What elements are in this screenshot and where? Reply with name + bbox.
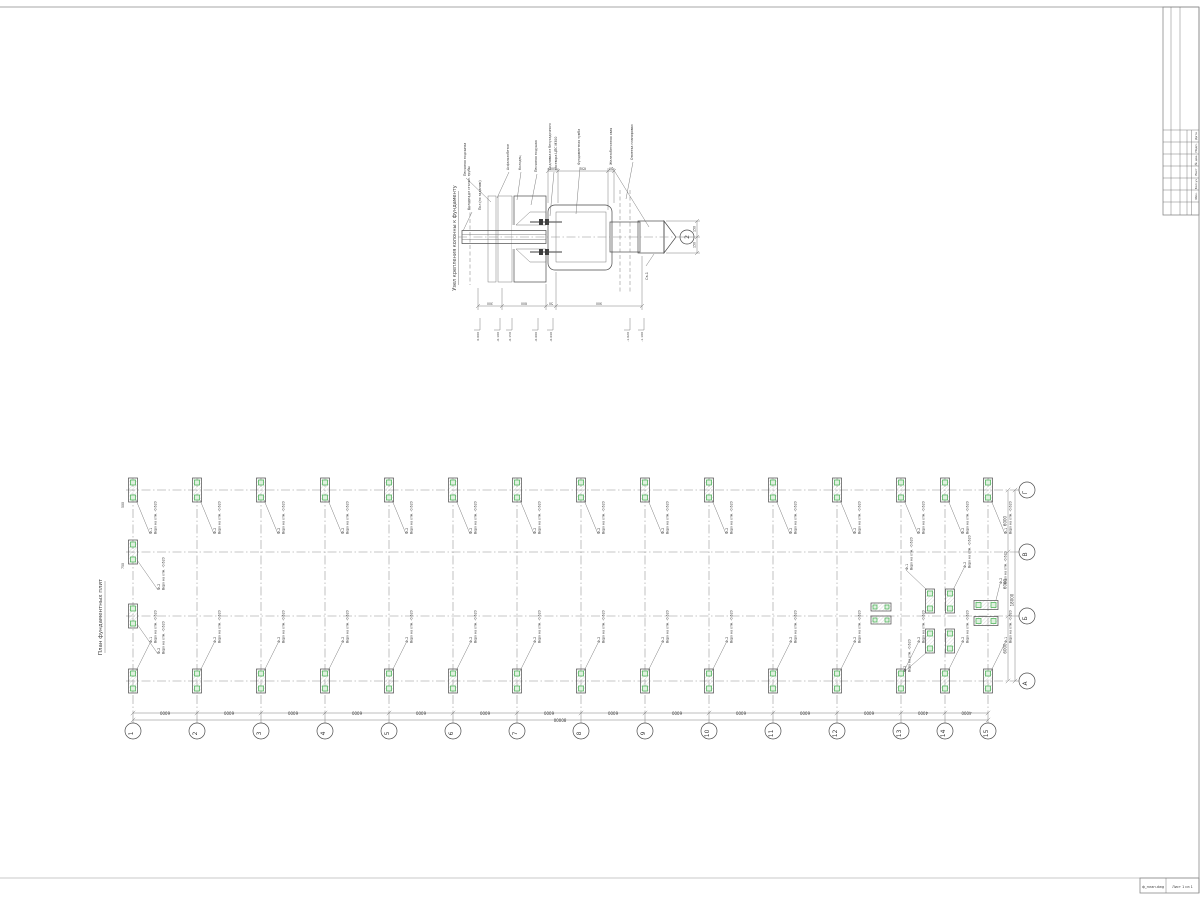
pad-elev-label: Верх на отм. -0.620 [162, 557, 166, 590]
axis-bubble [509, 723, 525, 739]
axis-bubble-label: 14 [940, 729, 947, 737]
pad-leader [584, 500, 598, 534]
anchor-plate [991, 603, 996, 608]
pad-leader [776, 643, 790, 671]
pad-leader [906, 570, 927, 590]
anchor-plate [943, 671, 948, 676]
pad-leader [137, 560, 158, 590]
sheet-frame [0, 7, 1199, 893]
svg-text:-0.100: -0.100 [496, 332, 500, 342]
svg-text:300: 300 [487, 301, 493, 305]
axis-bubble [189, 723, 205, 739]
anchor-plate [986, 495, 991, 500]
anchor-plate [259, 480, 264, 485]
axis-bubble-label: 7 [512, 731, 519, 735]
drawing-canvas: Дата Подп. № док. Лист Кол.уч Изм. ф_пла… [0, 0, 1200, 900]
anchor-plate [579, 686, 584, 691]
row-dim-label: 6000 [1003, 515, 1008, 526]
svg-text:Подливка из безусадочного: Подливка из безусадочного [548, 123, 552, 170]
pad-mark-label: Ф-2 [789, 637, 793, 643]
svg-text:Колонна из стальн. трубы: Колонна из стальн. трубы [467, 166, 471, 210]
pad-mark-label: Ф-2 [157, 584, 161, 590]
pad-mark-label: Ф-2 [961, 528, 965, 534]
svg-text:Железобетонная свая: Железобетонная свая [609, 128, 613, 165]
pad-leader [200, 643, 214, 671]
pad-elev-label: Верх на отм. -0.620 [858, 610, 862, 643]
anchor-plate [986, 480, 991, 485]
pad-mark-label: Ф-2 [405, 528, 409, 534]
pad-elev-label: Верх на отм. -0.620 [910, 537, 914, 570]
pad-elev-label: Верх на отм. -0.620 [1009, 610, 1013, 643]
stamp-label: № док. [1194, 155, 1198, 166]
pad-mark-label: Ф-2 [853, 528, 857, 534]
pad-elev-label: Верх на отм. -0.620 [346, 610, 350, 643]
pad-leader [264, 500, 278, 534]
bay-dim-label: 6000 [799, 711, 810, 716]
stamp-label: Кол.уч [1194, 179, 1198, 190]
pad-mark-label: Ф-2 [661, 528, 665, 534]
pad-elev-label: Верх на отм. -0.620 [794, 610, 798, 643]
anchor-plate [928, 606, 933, 611]
svg-text:раствора ЦПС М300: раствора ЦПС М300 [554, 137, 558, 170]
anchor-plate [323, 495, 328, 500]
detail-bottom-dims: 300 600 50 900 [476, 256, 644, 310]
anchor-plate [991, 619, 996, 624]
pad-elev-label: Верх на отм. -0.620 [730, 610, 734, 643]
bay-dim-label: 4000 [961, 711, 972, 716]
bay-dim-label: 6000 [543, 711, 554, 716]
pad-elev-label: Верх на отм. -0.620 [538, 501, 542, 534]
bay-dim-label: 6000 [415, 711, 426, 716]
anchor-plate [195, 495, 200, 500]
anchor-plate [643, 686, 648, 691]
anchor-plate [579, 480, 584, 485]
anchor-plate [835, 480, 840, 485]
total-dim-label: 80000 [553, 718, 566, 723]
pad-mark-label: Ф-2 [341, 528, 345, 534]
axis-bubble [381, 723, 397, 739]
bay-dim-label: 6000 [607, 711, 618, 716]
svg-text:600: 600 [521, 301, 527, 305]
pad-mark-label: Ф-2 [917, 528, 921, 534]
pad-leader [840, 500, 854, 534]
svg-text:Песчаная подушка: Песчаная подушка [534, 140, 538, 172]
axis-bubble-label: Г [1022, 490, 1029, 494]
svg-text:100: 100 [550, 166, 556, 170]
detail-title: Узел крепления колонны к фундаменту [452, 185, 458, 291]
anchor-plate [771, 671, 776, 676]
anchor-plate [643, 495, 648, 500]
axis-bubble [1019, 544, 1035, 560]
anchor-plate [131, 557, 136, 562]
pad-elev-label: Верх на отм. -0.620 [922, 610, 926, 643]
pad-mark-label: Ф-2 [661, 637, 665, 643]
axis-bubble-label: 9 [640, 731, 647, 735]
anchor-plate [986, 686, 991, 691]
pad-elev-label: Верх на отм. -0.620 [162, 621, 166, 654]
row-total-dim-label: 18000 [1010, 593, 1015, 606]
pad-mark-label: Ф-2 [213, 528, 217, 534]
axis-bubble-label: 2 [192, 731, 199, 735]
pad-mark-label: Ф-2 [533, 528, 537, 534]
axis-bubble [1019, 608, 1035, 624]
pad-mark-label: Ф-2 [853, 637, 857, 643]
axis-bubble [637, 723, 653, 739]
pad-elev-label: Верх на отм. -0.620 [730, 501, 734, 534]
pad-leader [264, 643, 278, 671]
pad-leader [520, 643, 534, 671]
anchor-plate [323, 671, 328, 676]
svg-text:650: 650 [580, 166, 586, 170]
pad-leader [456, 500, 470, 534]
anchor-plate [943, 495, 948, 500]
anchor-plate [707, 495, 712, 500]
anchor-plate [259, 686, 264, 691]
axis-bubble-label: 1 [128, 731, 135, 735]
pad-leader [456, 643, 470, 671]
anchor-plate [515, 480, 520, 485]
anchor-plate [579, 495, 584, 500]
svg-text:900: 900 [596, 301, 602, 305]
pad-elev-label: Верх на отм. -0.620 [602, 610, 606, 643]
pad-elev-label: Верх на отм. -0.620 [218, 610, 222, 643]
anchor-plate [707, 686, 712, 691]
anchor-plate [259, 671, 264, 676]
pad-elev-label: Верх на отм. -0.620 [282, 501, 286, 534]
axis-bubble-label: В [1022, 552, 1029, 556]
pad-dim-label: 500 [121, 502, 125, 508]
foundation-plan: План фундаментных плит 12345678910111213… [98, 478, 1035, 739]
anchor-plate [387, 495, 392, 500]
pad-mark-label: Ф-2 [157, 648, 161, 654]
anchor-plate [873, 618, 877, 622]
anchor-plate [948, 631, 953, 636]
pad-elev-label: Верх на отм. -0.620 [794, 501, 798, 534]
detail-elevations: 0.000 -0.100 -0.150 -0.600 -0.640 -1.020… [474, 318, 644, 342]
svg-text:Асфальтобетон: Асфальтобетон [506, 144, 510, 170]
pad-leader [648, 643, 662, 671]
pad-elev-label: Верх на отм. -0.620 [966, 501, 970, 534]
anchor-plate [195, 671, 200, 676]
axis-bubble-label: 15 [983, 729, 990, 737]
axis-bubble-label: 6 [448, 731, 455, 735]
pad-leader [520, 500, 534, 534]
anchor-plate [451, 495, 456, 500]
pad-mark-label: Ф-2 [341, 637, 345, 643]
axis-bubble-label: 4 [320, 731, 327, 735]
pad-elev-label: Верх на отм. -0.620 [474, 610, 478, 643]
pad-leader [328, 500, 342, 534]
anchor-plate [873, 605, 877, 609]
axis-bubble-label: 13 [896, 729, 903, 737]
pad-leader [648, 500, 662, 534]
anchor-plate [579, 671, 584, 676]
bay-dim-label: 6000 [351, 711, 362, 716]
anchor-plate [976, 603, 981, 608]
svg-text:-1.020: -1.020 [626, 332, 630, 342]
bay-dim-label: 6000 [479, 711, 490, 716]
bay-dim-label: 6000 [671, 711, 682, 716]
svg-text:Колодец: Колодец [518, 155, 522, 170]
axis-bubble-label: 3 [256, 731, 263, 735]
stamp-label: Лист [1194, 168, 1198, 176]
svg-text:50: 50 [609, 166, 613, 170]
anchor-plate [515, 671, 520, 676]
anchor-plate [771, 495, 776, 500]
axis-bubble [317, 723, 333, 739]
detail-leader-labels: Песчаная подсыпка Асфальтобетон Колодец … [463, 123, 654, 280]
pad-mark-label: Ф-2 [405, 637, 409, 643]
pad-elev-label: Верх на отм. -0.620 [410, 610, 414, 643]
pad-elev-label: Верх на отм. -0.620 [966, 610, 970, 643]
anchor-plate [899, 495, 904, 500]
svg-text:-0.640: -0.640 [549, 332, 553, 342]
svg-text:-0.150: -0.150 [508, 332, 512, 342]
pad-leader [392, 643, 406, 671]
anchor-plate [515, 495, 520, 500]
pad-mark-label: Ф-2 [469, 528, 473, 534]
pad-leader [712, 500, 726, 534]
pad-mark-label: Ф-2 [277, 637, 281, 643]
pad-elev-label: Верх на отм. -0.620 [968, 535, 972, 568]
pad-mark-label: Ф-2 [903, 666, 907, 672]
anchor-plate [515, 686, 520, 691]
pad-elev-label: Верх на отм. -0.620 [410, 501, 414, 534]
anchor-plate [928, 591, 933, 596]
pad-elev-label: Верх на отм. -0.620 [1004, 551, 1008, 584]
pad-mark-label: Ф-2 [597, 528, 601, 534]
axis-bubble [573, 723, 589, 739]
pad-elev-label: Верх на отм. -0.620 [602, 501, 606, 534]
bay-dim-label: 6000 [159, 711, 170, 716]
axis-bubble-label: 11 [768, 729, 775, 737]
anchor-plate [948, 591, 953, 596]
svg-text:150: 150 [693, 242, 697, 248]
pad-mark-label: Ф-2 [725, 637, 729, 643]
anchor-plate [131, 606, 136, 611]
pad-elev-label: Верх на отм. -0.620 [282, 610, 286, 643]
anchor-plate [259, 495, 264, 500]
row-dim-label: 6000 [1003, 643, 1008, 654]
svg-text:-0.600: -0.600 [534, 332, 538, 342]
svg-text:Фундаментная тумба: Фундаментная тумба [577, 129, 581, 165]
anchor-plate [943, 686, 948, 691]
anchor-plate [986, 671, 991, 676]
pad-leader [136, 500, 150, 534]
pad-mark-label: Ф-2 [533, 637, 537, 643]
anchor-plate [643, 671, 648, 676]
title-block: Дата Подп. № док. Лист Кол.уч Изм. [1163, 7, 1199, 215]
anchor-plate [131, 542, 136, 547]
svg-text:0.000: 0.000 [476, 332, 480, 341]
anchor-plate [131, 671, 136, 676]
anchor-plate [948, 606, 953, 611]
pad-mark-label: Ф-1 [1004, 528, 1008, 534]
pad-elev-label: Верх на отм. -0.620 [474, 501, 478, 534]
anchor-plate [835, 495, 840, 500]
axis-bubble-label: Б [1022, 616, 1029, 620]
anchor-plate [131, 686, 136, 691]
pad-elev-label: Верх на отм. -0.620 [1009, 501, 1013, 534]
pad-leader [328, 643, 342, 671]
pad-leader [712, 643, 726, 671]
pad-leader [840, 643, 854, 671]
axis-bubble-label: А [1022, 680, 1029, 685]
anchor-plate [885, 618, 889, 622]
bay-dim-label: 6000 [287, 711, 298, 716]
pad-mark-label: Ф-2 [999, 578, 1003, 584]
pad-leader [136, 643, 150, 671]
footer-sheet-label: Лист 1 из 1 [1172, 885, 1193, 889]
anchor-plate [323, 480, 328, 485]
axis-bubble [1019, 673, 1035, 689]
anchor-plate [195, 480, 200, 485]
anchor-plate [899, 480, 904, 485]
pad-elev-label: Верх на отм. -0.620 [154, 501, 158, 534]
stamp-label: Изм. [1194, 192, 1198, 199]
anchor-plate [771, 480, 776, 485]
footer-strip: ф_план.dwg Лист 1 из 1 [1140, 878, 1199, 893]
svg-text:Отметка планировки: Отметка планировки [630, 124, 634, 160]
anchor-plate [131, 480, 136, 485]
pad-leader [584, 643, 598, 671]
anchor-plate [835, 686, 840, 691]
pad-mark-label: Ф-1 [1004, 637, 1008, 643]
svg-text:Св-1: Св-1 [645, 272, 649, 280]
anchor-plate [451, 671, 456, 676]
svg-text:-1.100: -1.100 [640, 332, 644, 342]
detail-top-dims: 100 650 50 [546, 166, 616, 210]
anchor-plate [771, 686, 776, 691]
pad-elev-label: Верх на отм. -0.620 [346, 501, 350, 534]
anchor-plate [976, 619, 981, 624]
axis-bubble [125, 723, 141, 739]
plan-title: План фундаментных плит [98, 578, 104, 655]
pad-leader [948, 500, 962, 534]
pad-mark-label: Ф-2 [277, 528, 281, 534]
anchor-plate [451, 686, 456, 691]
stamp-label: Подп. [1194, 143, 1198, 152]
pad-mark-label: Ф-2 [917, 637, 921, 643]
anchor-plate [707, 671, 712, 676]
anchor-plate [928, 646, 933, 651]
footer-file-label: ф_план.dwg [1142, 885, 1164, 889]
pad-elev-label: Верх на отм. -0.620 [154, 610, 158, 643]
pad-leader [953, 568, 964, 590]
pad-mark-label: Ф-2 [963, 562, 967, 568]
axis-bubble-label: 10 [704, 729, 711, 737]
anchor-plate [451, 480, 456, 485]
pad-elev-label: Верх на отм. -0.620 [922, 501, 926, 534]
pad-elev-label: Верх на отм. -0.620 [538, 610, 542, 643]
anchor-plate [643, 480, 648, 485]
pad-elev-label: Верх на отм. -0.620 [218, 501, 222, 534]
pad-leader [996, 584, 1000, 600]
axis-bubble [445, 723, 461, 739]
bay-dim-label: 6000 [863, 711, 874, 716]
axis-bubble-label: 8 [576, 731, 583, 735]
anchor-plate [899, 686, 904, 691]
anchor-plate [387, 480, 392, 485]
anchor-plate [387, 686, 392, 691]
pad-mark-label: Ф-2 [213, 637, 217, 643]
pad-mark-label: Ф-2 [469, 637, 473, 643]
anchor-plate [131, 621, 136, 626]
svg-text:Пол (по заданию): Пол (по заданию) [478, 180, 482, 210]
svg-text:50: 50 [549, 301, 553, 305]
anchor-plate [948, 646, 953, 651]
anchor-plate [195, 686, 200, 691]
pad-leader [904, 500, 918, 534]
drawing-sheet: Дата Подп. № док. Лист Кол.уч Изм. ф_пла… [0, 0, 1200, 900]
anchor-plate [928, 631, 933, 636]
pad-mark-label: Ф-2 [597, 637, 601, 643]
anchor-plate [885, 605, 889, 609]
bay-dim-label: 6000 [735, 711, 746, 716]
pad-leader [392, 500, 406, 534]
axis-bubble [253, 723, 269, 739]
pad-elev-label: Верх на отм. -0.620 [908, 639, 912, 672]
axis-bubble [1019, 482, 1035, 498]
anchor-plate [323, 686, 328, 691]
bay-dim-label: 6000 [223, 711, 234, 716]
anchor-plate [943, 480, 948, 485]
pad-leader [991, 643, 1005, 671]
pad-mark-label: Ф-2 [961, 637, 965, 643]
pad-leader [776, 500, 790, 534]
pad-leader [200, 500, 214, 534]
pad-mark-label: Ф-1 [905, 564, 909, 570]
axis-bubble-label: 5 [384, 731, 391, 735]
detail-drawing: Узел крепления колонны к фундаменту [452, 123, 700, 342]
pad-dim-label: 750 [121, 563, 125, 569]
stamp-label: Дата [1194, 132, 1198, 140]
pad-mark-label: Ф-1 [149, 528, 153, 534]
pad-elev-label: Верх на отм. -0.620 [666, 610, 670, 643]
anchor-plate [707, 480, 712, 485]
anchor-plate [387, 671, 392, 676]
anchor-plate [131, 495, 136, 500]
axis-bubble-label: 12 [832, 729, 839, 737]
pad-elev-label: Верх на отм. -0.620 [666, 501, 670, 534]
anchor-plate [835, 671, 840, 676]
bay-dim-label: 4000 [917, 711, 928, 716]
pad-mark-label: Ф-2 [789, 528, 793, 534]
pad-elev-label: Верх на отм. -0.620 [858, 501, 862, 534]
svg-text:150: 150 [693, 226, 697, 232]
pad-mark-label: Ф-2 [725, 528, 729, 534]
